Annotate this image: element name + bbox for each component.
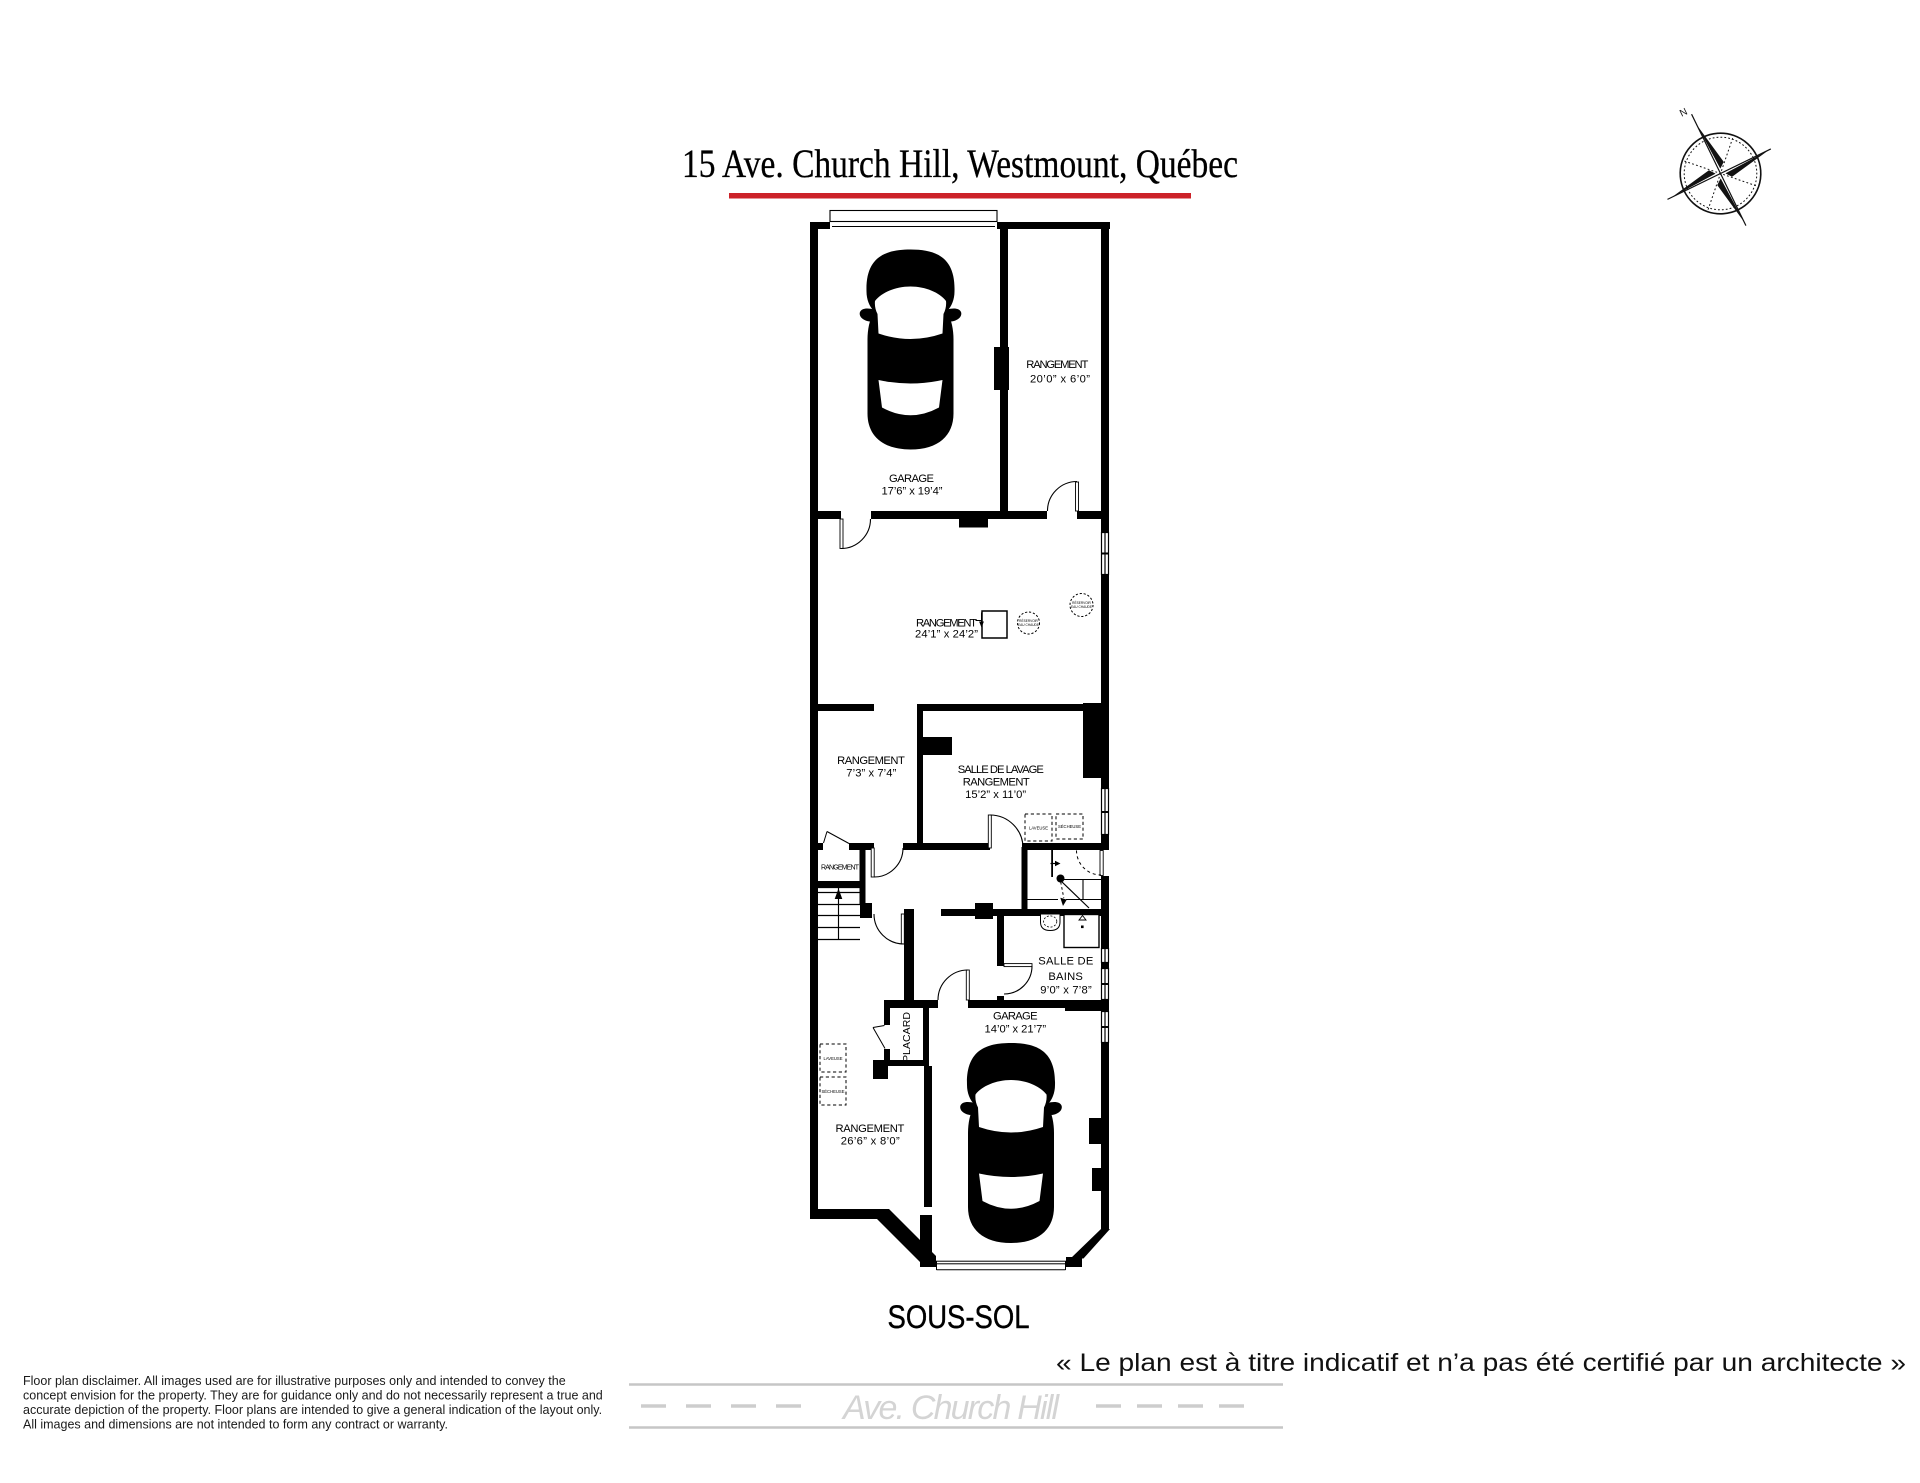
svg-text:SALLE DE LAVAGE: SALLE DE LAVAGE [958,764,1044,776]
svg-text:RANGEMENT: RANGEMENT [1026,359,1088,371]
svg-text:20’0” x 6’0”: 20’0” x 6’0” [1030,373,1090,385]
svg-text:GARAGE: GARAGE [993,1011,1038,1023]
svg-text:RANGEMENT: RANGEMENT [837,755,905,767]
svg-text:RANGEMENT: RANGEMENT [963,777,1030,789]
svg-text:BAINS: BAINS [1048,971,1083,983]
svg-text:24’1” x 24’2”: 24’1” x 24’2” [915,629,978,641]
svg-text:7’3” x 7’4”: 7’3” x 7’4” [846,768,896,780]
svg-text:SOUS-SOL: SOUS-SOL [888,1299,1030,1335]
svg-text:RANGEMENT: RANGEMENT [821,865,860,872]
svg-text:15 Ave. Church Hill, Westmount: 15 Ave. Church Hill, Westmount, Québec [682,141,1238,186]
svg-text:9’0” x 7’8”: 9’0” x 7’8” [1040,985,1092,997]
svg-text:Ave. Church Hill: Ave. Church Hill [841,1389,1060,1427]
svg-text:SALLE DE: SALLE DE [1038,956,1093,968]
svg-text:All images and dimensions are: All images and dimensions are not intend… [23,1418,448,1432]
svg-text:EAU CHAUDE: EAU CHAUDE [1018,623,1039,627]
svg-text:15’2” x 11’0”: 15’2” x 11’0” [965,789,1026,801]
svg-text:PLACARD: PLACARD [901,1012,913,1062]
svg-text:EAU CHAUDE: EAU CHAUDE [1071,605,1092,609]
svg-text:LAVEUSE: LAVEUSE [823,1056,842,1061]
svg-text:SÉCHEUSE: SÉCHEUSE [821,1089,844,1094]
svg-text:17’6” x 19’4”: 17’6” x 19’4” [882,486,943,498]
svg-text:GARAGE: GARAGE [889,473,934,485]
svg-text:« Le plan est à titre indicati: « Le plan est à titre indicatif et n’a p… [1056,1349,1906,1377]
svg-text:LAVEUSE: LAVEUSE [1029,826,1048,831]
svg-text:26’6” x 8’0”: 26’6” x 8’0” [841,1136,900,1148]
svg-text:RANGEMENT: RANGEMENT [835,1123,904,1135]
svg-text:Floor plan disclaimer. All ima: Floor plan disclaimer. All images used a… [23,1374,566,1388]
svg-text:SÉCHEUSE: SÉCHEUSE [1058,824,1081,829]
svg-text:concept envision for the prope: concept envision for the property. They … [23,1389,603,1403]
svg-text:accurate depiction of the prop: accurate depiction of the property. Floo… [23,1403,602,1417]
svg-text:14’0” x 21’7”: 14’0” x 21’7” [985,1024,1047,1036]
